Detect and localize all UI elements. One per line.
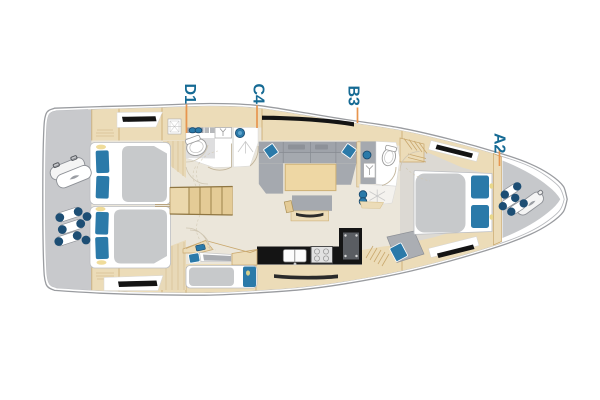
svg-text:A2: A2 — [491, 133, 508, 154]
svg-text:B3: B3 — [345, 86, 362, 107]
svg-text:C4: C4 — [250, 84, 267, 105]
svg-text:D1: D1 — [181, 84, 198, 105]
